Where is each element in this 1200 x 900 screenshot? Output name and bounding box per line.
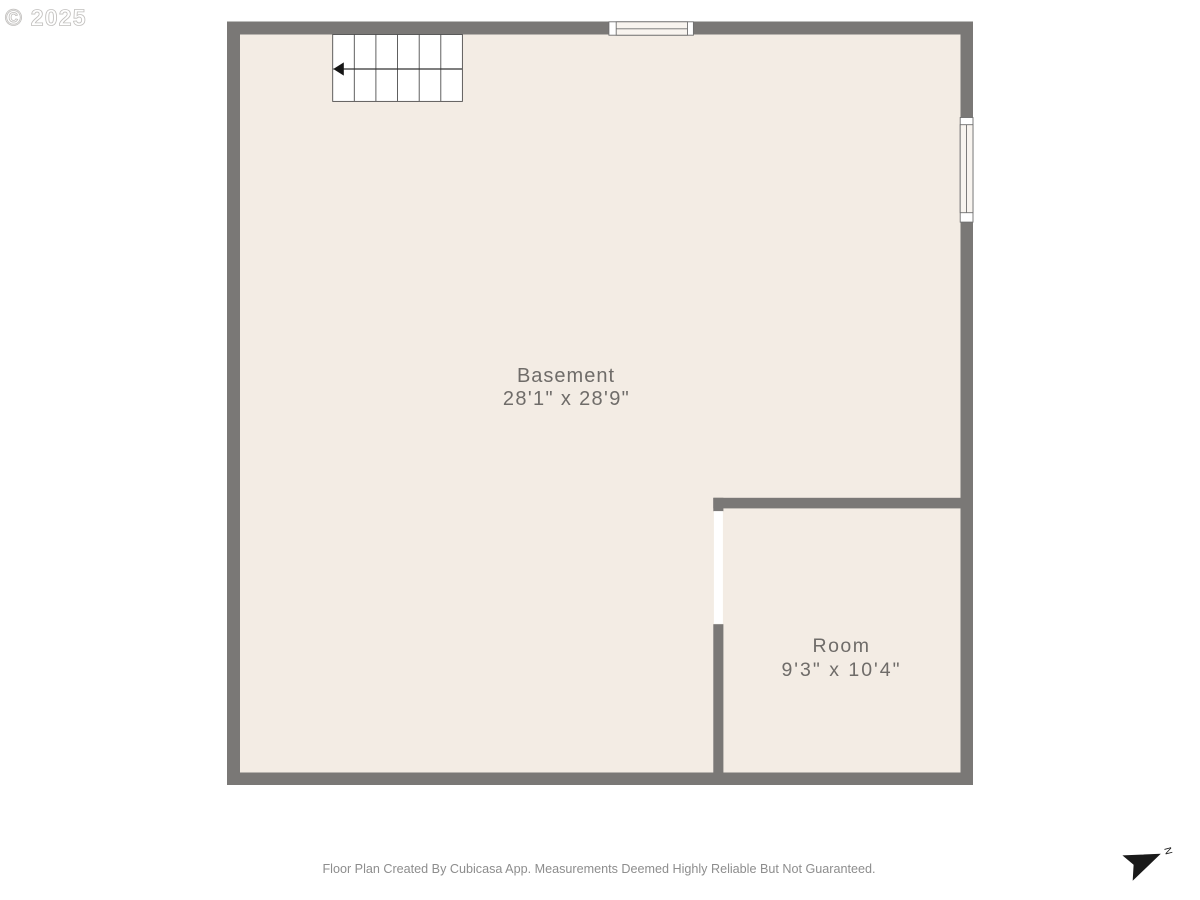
svg-text:© 2025: © 2025 xyxy=(5,5,87,31)
svg-text:Floor Plan Created By Cubicasa: Floor Plan Created By Cubicasa App. Meas… xyxy=(322,862,875,876)
svg-text:Room: Room xyxy=(812,635,870,657)
svg-text:Basement: Basement xyxy=(517,365,615,387)
svg-text:28'1" x 28'9": 28'1" x 28'9" xyxy=(503,388,630,410)
svg-text:9'3" x 10'4": 9'3" x 10'4" xyxy=(781,659,901,681)
